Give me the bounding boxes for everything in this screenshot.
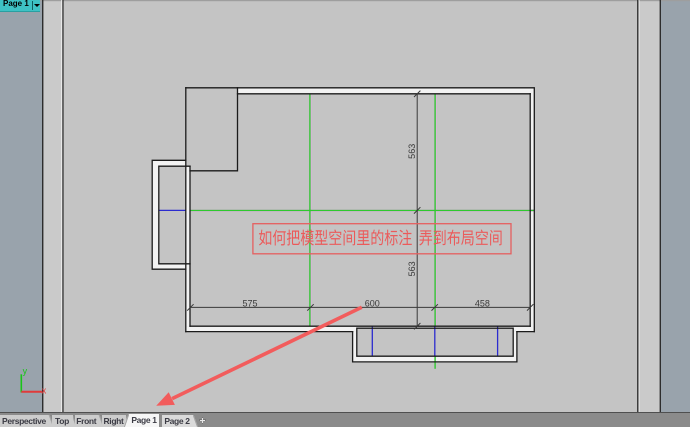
svg-text:600: 600 <box>365 298 380 308</box>
svg-text:575: 575 <box>242 298 257 308</box>
svg-text:563: 563 <box>407 144 417 159</box>
svg-text:563: 563 <box>407 261 417 276</box>
svg-text:x: x <box>42 385 47 395</box>
svg-text:458: 458 <box>475 298 490 308</box>
svg-text:y: y <box>23 366 28 376</box>
